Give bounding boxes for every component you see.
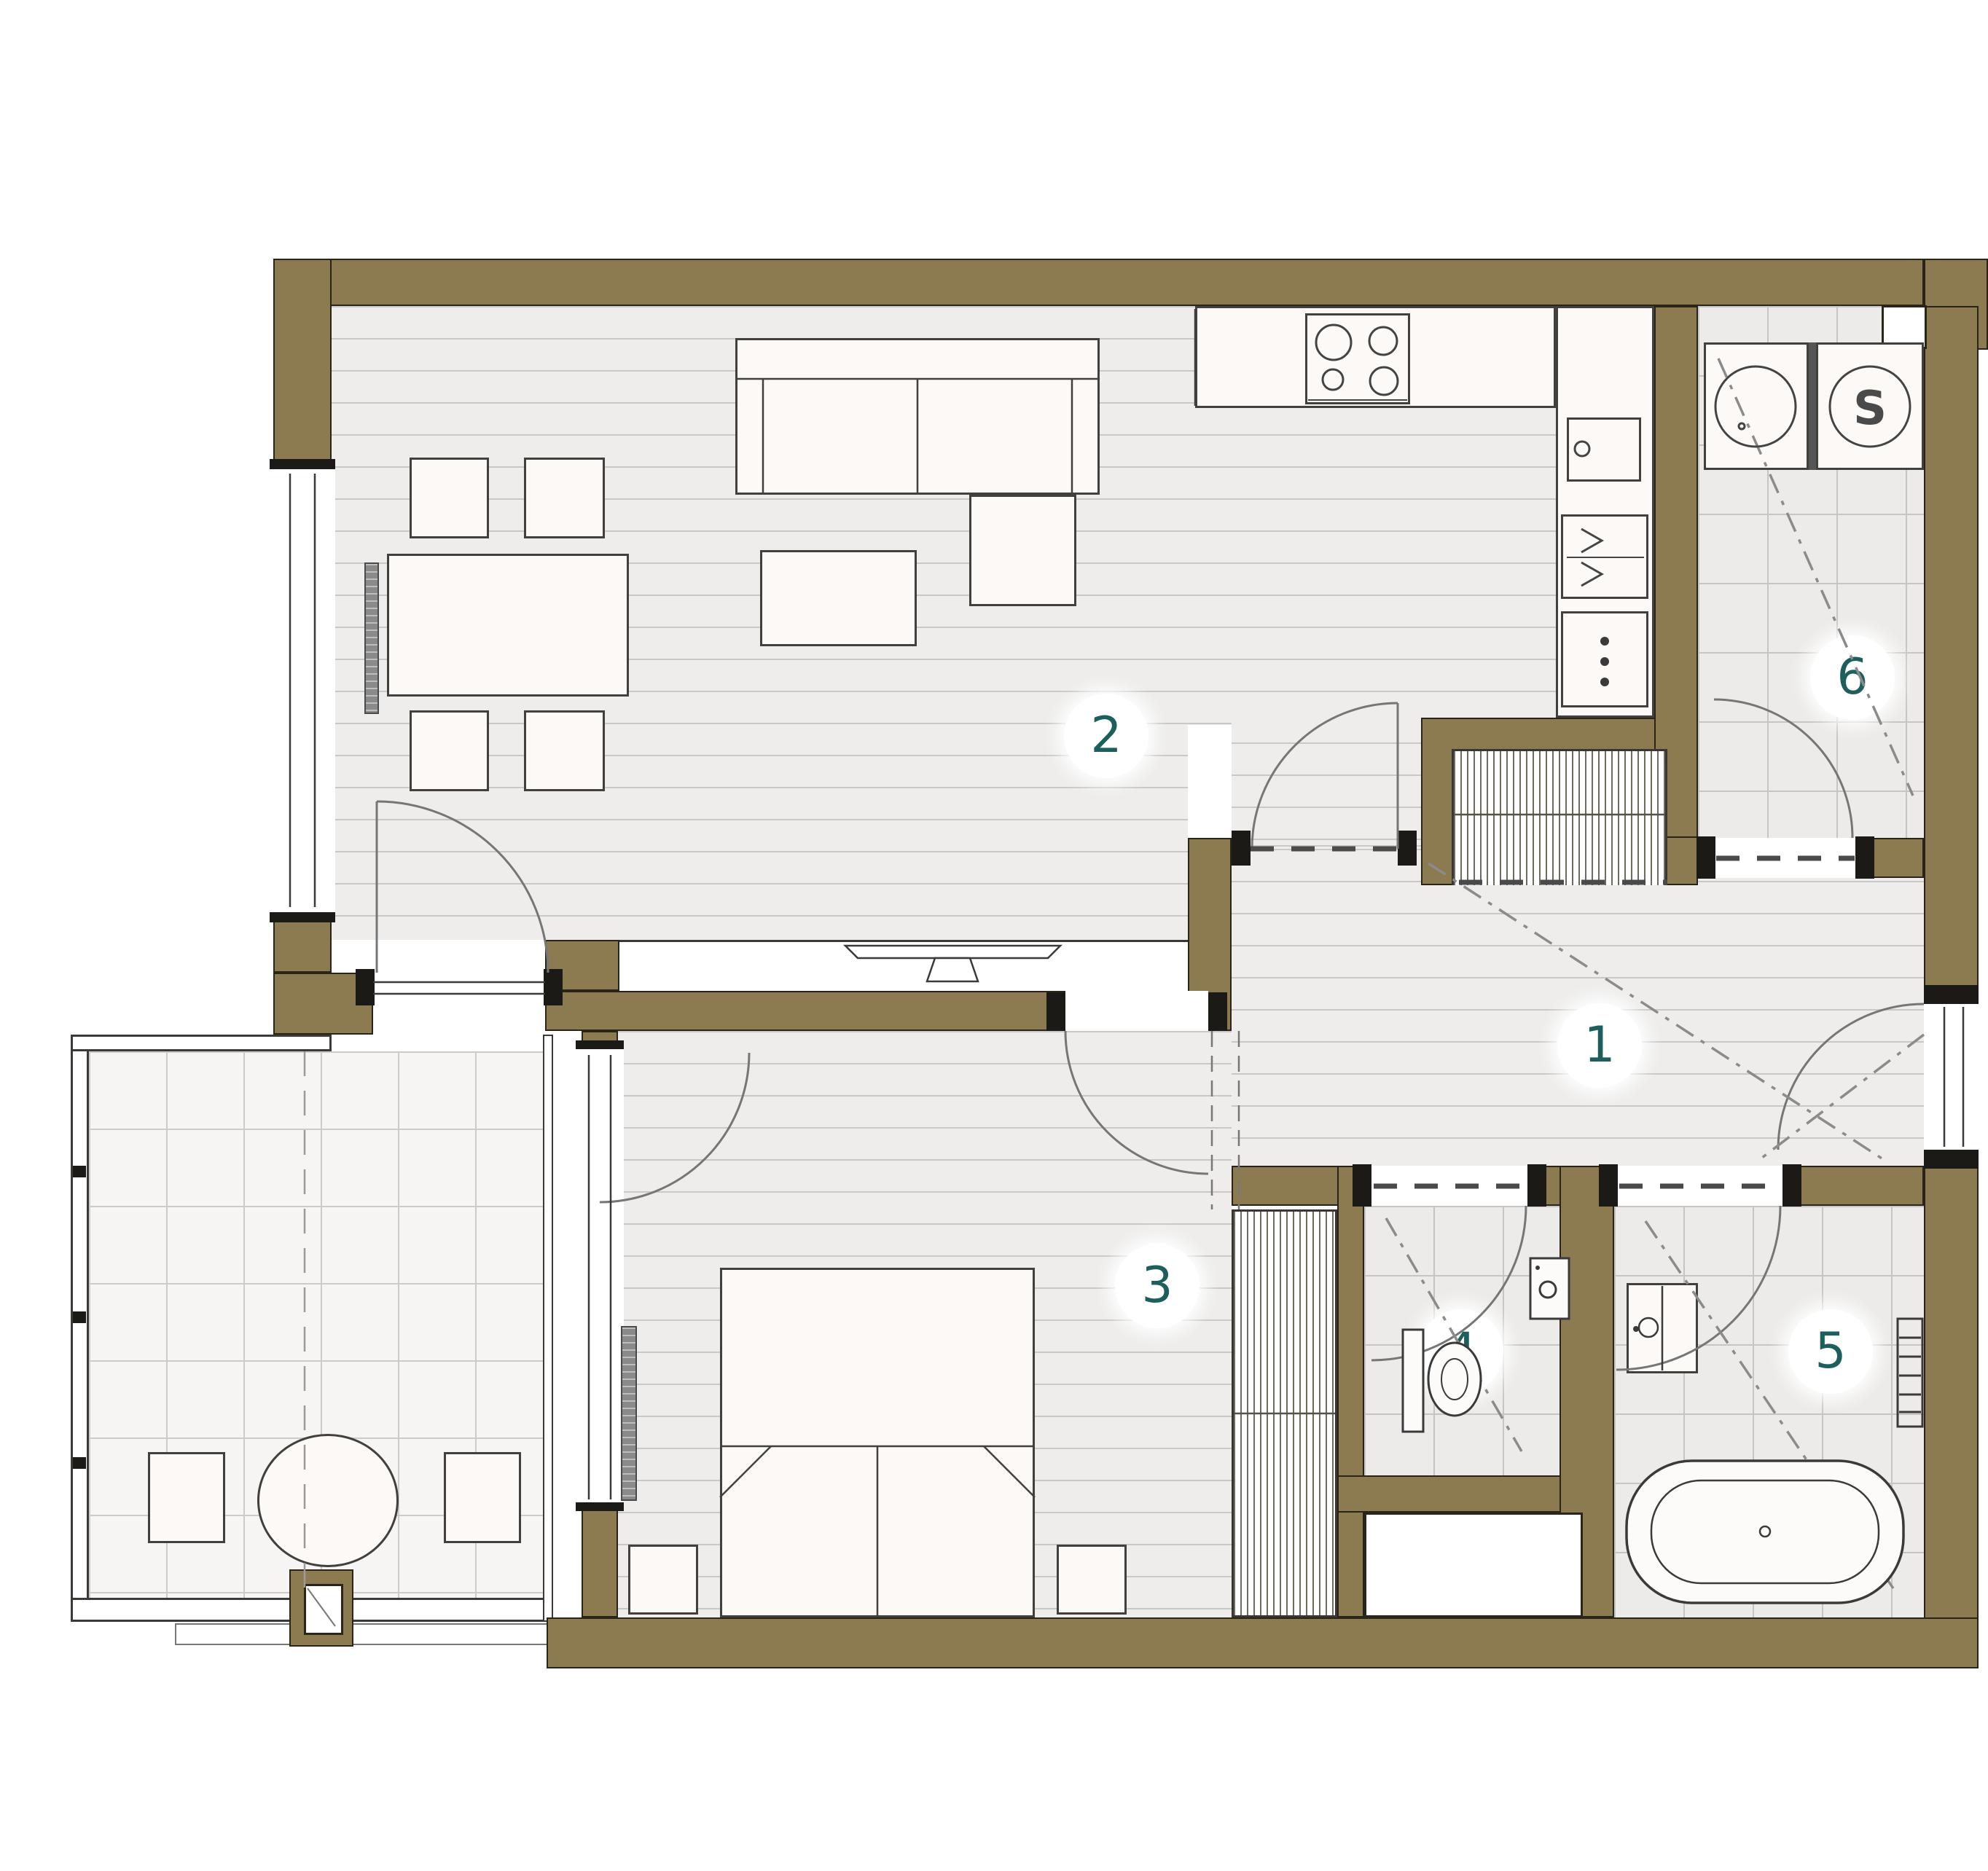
window-cap	[576, 1502, 624, 1511]
balcony-rail-right	[543, 1035, 553, 1622]
wall-wc-bottom	[1337, 1475, 1583, 1513]
wall-top	[273, 259, 1924, 306]
balcony-table	[257, 1434, 399, 1567]
balcony-chair	[148, 1452, 225, 1543]
service-shaft	[1364, 1513, 1583, 1617]
window-cap	[270, 459, 335, 469]
door-post	[1208, 992, 1227, 1031]
room-label-3: 3	[1115, 1244, 1200, 1328]
balcony-door-threshold	[373, 973, 545, 1004]
radiator-living	[364, 562, 379, 714]
wall-bottom	[547, 1617, 1979, 1668]
room-label-6: 6	[1810, 635, 1895, 720]
door-post	[544, 969, 563, 1005]
kitchen-sink	[1567, 417, 1641, 482]
fridge	[1561, 611, 1648, 707]
door-post	[1924, 985, 1979, 1004]
door-post	[1232, 831, 1251, 866]
dryer	[1816, 342, 1924, 470]
door-post	[1353, 1164, 1371, 1207]
door-post	[1527, 1164, 1546, 1207]
sofa-chaise	[969, 495, 1076, 606]
rail-post	[73, 1166, 86, 1177]
dining-chair	[524, 710, 605, 791]
appliance-divider	[1809, 342, 1816, 470]
hallway-floor	[1232, 849, 1924, 1166]
tv-wall-niche	[616, 940, 1188, 995]
room-label-4: 4	[1419, 1309, 1503, 1394]
balcony-rail-top	[71, 1035, 332, 1051]
entrance-door-opening	[1924, 1004, 1979, 1150]
sofa	[735, 338, 1100, 495]
balcony-column-core	[304, 1584, 343, 1635]
dining-chair	[410, 458, 489, 538]
room-label-2: 2	[1064, 694, 1148, 778]
door-post	[1046, 992, 1065, 1031]
balcony-chair	[444, 1452, 521, 1543]
rail-post	[73, 1311, 86, 1323]
door-post	[1924, 1150, 1979, 1169]
apartment-floor-plan: 1 2 3 4 5 6	[0, 0, 1988, 1871]
bedroom-wardrobe	[1232, 1209, 1337, 1617]
rail-post	[73, 1457, 86, 1469]
bedroom-window	[576, 1048, 624, 1504]
nightstand	[628, 1545, 698, 1615]
bed	[720, 1268, 1035, 1617]
bath-vanity	[1627, 1283, 1698, 1373]
window-cap	[270, 912, 335, 922]
bedroom-door-opening	[1065, 991, 1208, 1031]
door-post	[1599, 1164, 1618, 1207]
balcony-rail-left	[71, 1035, 89, 1622]
bathroom-floor	[1614, 1206, 1924, 1617]
room-label-1: 1	[1557, 1003, 1642, 1088]
bath-door-opening	[1618, 1166, 1782, 1206]
door-post	[1782, 1164, 1801, 1207]
door-post	[356, 969, 375, 1005]
door-post	[1697, 836, 1715, 879]
dining-table	[387, 554, 629, 697]
living-window	[270, 466, 335, 914]
nightstand	[1057, 1545, 1127, 1615]
wall-wc-left	[1337, 1166, 1364, 1617]
dining-chair	[524, 458, 605, 538]
living-room-floor-vestibule	[1232, 718, 1421, 852]
kitchen-stove	[1305, 313, 1410, 404]
dishwasher	[1561, 514, 1648, 599]
radiator-bedroom	[621, 1326, 637, 1501]
coffee-table	[760, 550, 917, 646]
door-post	[1398, 831, 1417, 866]
window-cap	[576, 1040, 624, 1049]
washing-machine	[1704, 342, 1809, 470]
hall-closet	[1452, 749, 1667, 885]
balcony-door-outer	[373, 1004, 545, 1035]
utility-door-opening	[1714, 838, 1857, 878]
balcony-walkway	[175, 1623, 549, 1645]
door-post	[1855, 836, 1874, 879]
wc-door-opening	[1371, 1166, 1527, 1206]
room-label-5: 5	[1788, 1309, 1873, 1394]
dining-chair	[410, 710, 489, 791]
